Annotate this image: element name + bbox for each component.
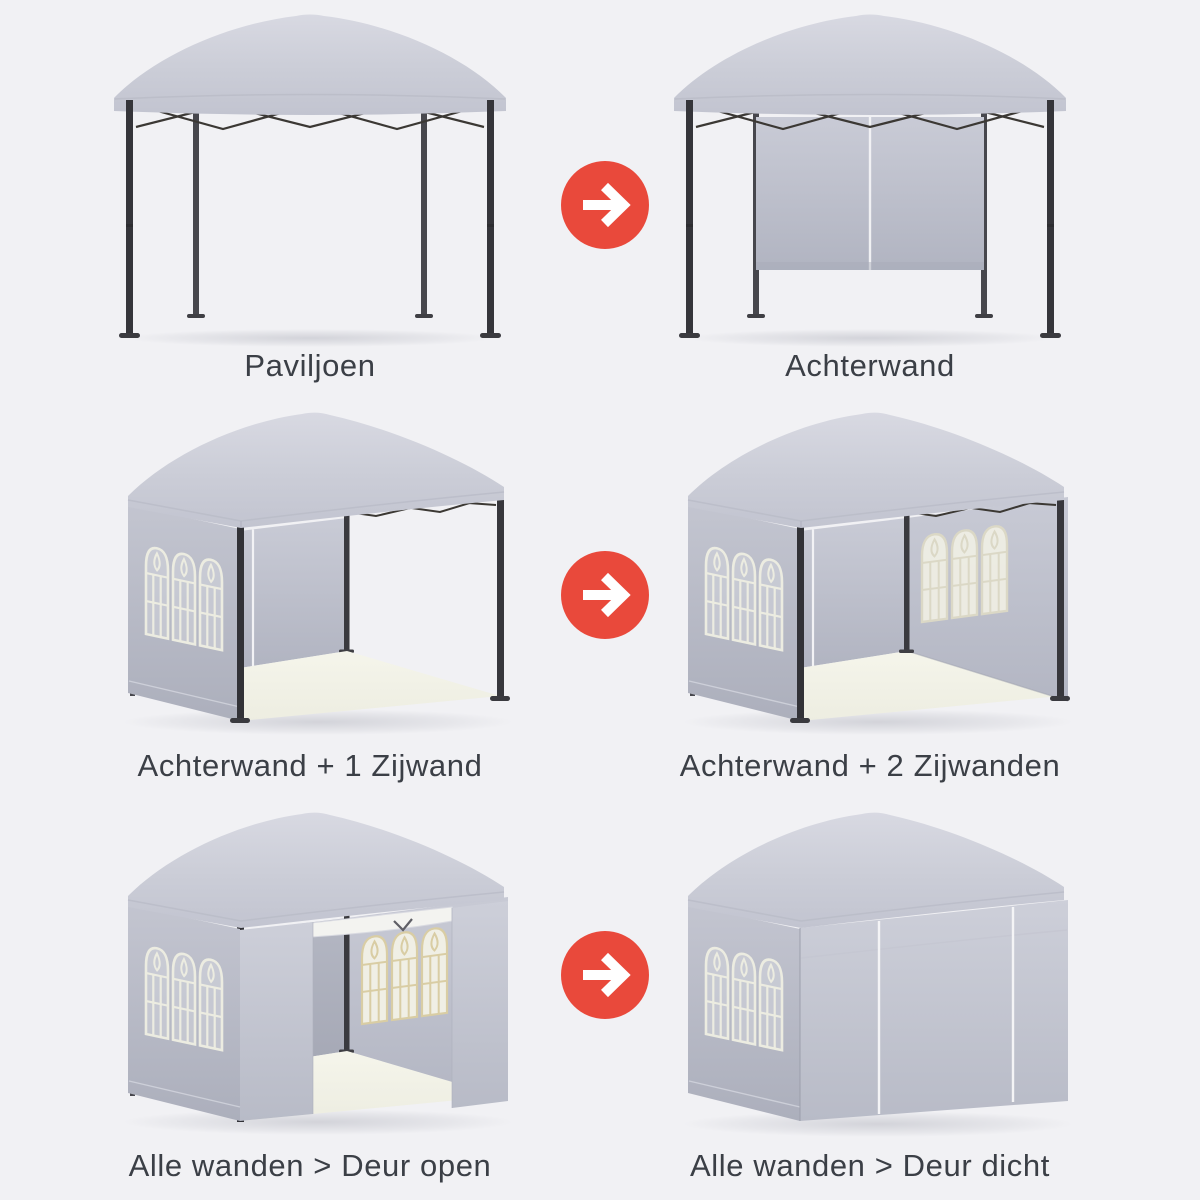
- pavilion-back-wall-illustration: [660, 4, 1080, 354]
- front-right-leg: [490, 494, 510, 701]
- side-wall-window: [706, 946, 782, 1050]
- transform-arrow: [561, 931, 649, 1019]
- transform-arrow: [561, 161, 649, 249]
- step-row-3: Alle wanden > Deur open: [0, 800, 1200, 1200]
- ground-shadow: [685, 329, 1055, 347]
- arrow-right-icon: [561, 931, 649, 1019]
- step-label: Alle wanden > Deur dicht: [690, 1148, 1050, 1184]
- pavilion-frame-illustration: [100, 4, 520, 354]
- side-wall-right-window: [922, 525, 1007, 622]
- canopy: [674, 15, 1066, 116]
- rear-legs: [187, 108, 433, 318]
- front-wall-left-panel: [240, 922, 313, 1121]
- arrow-right-icon: [561, 551, 649, 639]
- side-wall-right-window: [362, 927, 447, 1024]
- canopy: [114, 15, 506, 116]
- step-label: Achterwand: [785, 348, 955, 384]
- step-cell-door-open: Alle wanden > Deur open: [100, 804, 520, 1184]
- step-label: Alle wanden > Deur open: [129, 1148, 492, 1184]
- front-wall-right-panel: [452, 901, 508, 1108]
- step-label: Achterwand + 2 Zijwanden: [680, 748, 1061, 784]
- step-cell-two-side-walls: Achterwand + 2 Zijwanden: [660, 404, 1080, 784]
- ground-shadow: [125, 329, 495, 347]
- step-cell-door-closed: Alle wanden > Deur dicht: [660, 804, 1080, 1184]
- side-wall-window: [706, 546, 782, 650]
- step-row-2: Achterwand + 1 Zijwand: [0, 400, 1200, 800]
- step-cell-back-wall: Achterwand: [660, 4, 1080, 384]
- side-wall-window: [146, 946, 222, 1050]
- pavilion-door-open-illustration: [100, 804, 520, 1154]
- back-wall-panel: [240, 518, 347, 668]
- front-legs: [119, 100, 501, 338]
- back-wall-panel: [756, 117, 984, 270]
- pavilion-one-side-wall-illustration: [100, 404, 520, 754]
- step-cell-one-side-wall: Achterwand + 1 Zijwand: [100, 404, 520, 784]
- zipper-seam: [869, 117, 871, 270]
- step-cell-pavilion: Paviljoen: [100, 4, 520, 384]
- pavilion-door-closed-illustration: [660, 804, 1080, 1154]
- pavilion-two-side-walls-illustration: [660, 404, 1080, 754]
- transform-arrow: [561, 551, 649, 639]
- infographic-page: Paviljoen: [0, 0, 1200, 1200]
- side-wall-window: [146, 546, 222, 650]
- back-wall-panel: [800, 518, 907, 668]
- step-row-1: Paviljoen: [0, 0, 1200, 400]
- front-wall-closed: [800, 900, 1068, 1121]
- arrow-right-icon: [561, 161, 649, 249]
- step-label: Paviljoen: [244, 348, 375, 384]
- step-label: Achterwand + 1 Zijwand: [138, 748, 483, 784]
